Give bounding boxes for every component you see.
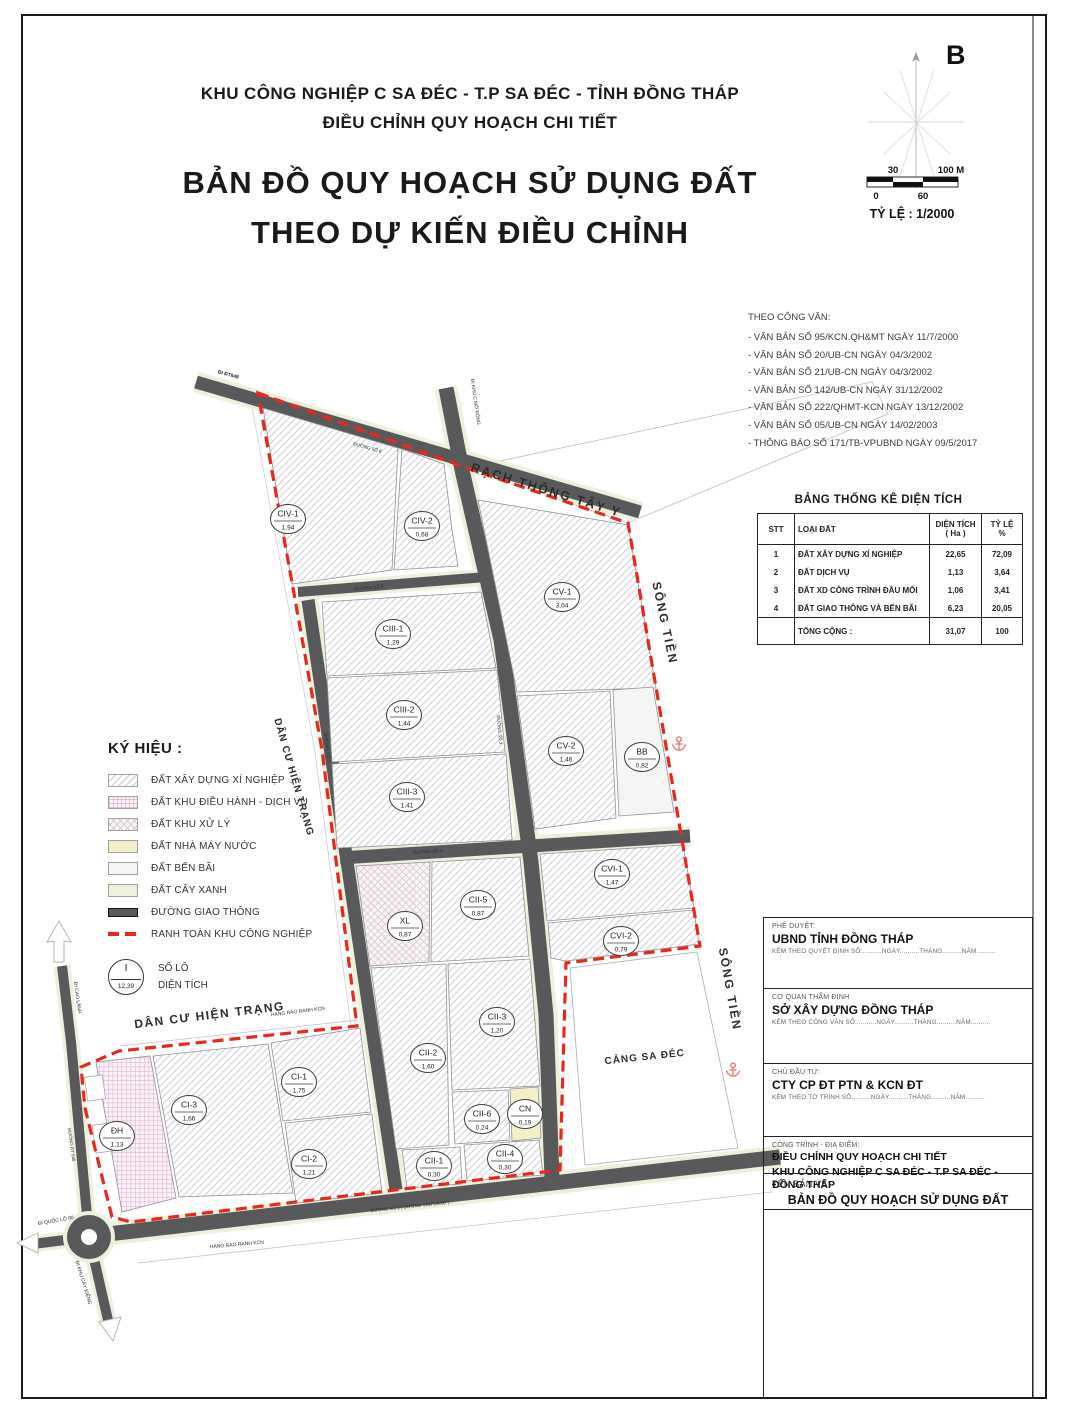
- document-item: - VĂN BẢN SỐ 142/UB-CN NGÀY 31/12/2002: [748, 382, 1033, 400]
- legend-label: RANH TOÀN KHU CÔNG NGHIỆP: [151, 929, 312, 940]
- table-cell: 1: [758, 545, 795, 564]
- svg-text:0,30: 0,30: [499, 1165, 512, 1172]
- lot-symbol-labels: SỐ LÔ DIỆN TÍCH: [158, 960, 208, 994]
- svg-text:0,82: 0,82: [636, 763, 649, 770]
- table-cell: 3,41: [982, 581, 1023, 599]
- approval-section: PHÊ DUYỆT: UBND TỈNH ĐỒNG THÁP KÈM THEO …: [764, 918, 1032, 988]
- legend-item: ĐẤT XÂY DỰNG XÍ NGHIỆP: [108, 769, 373, 791]
- svg-text:0: 0: [873, 191, 878, 202]
- table-cell: [758, 618, 795, 645]
- document-item: - THÔNG BÁO SỐ 171/TB-VPUBND NGÀY 09/5/2…: [748, 435, 1033, 453]
- table-cell: 20,05: [982, 599, 1023, 618]
- map-header: KHU CÔNG NGHIỆP C SA ĐÉC - T.P SA ĐÉC - …: [80, 84, 860, 251]
- col-dien-tich: DIỆN TÍCH ( Ha ): [930, 514, 982, 545]
- svg-text:1,47: 1,47: [606, 880, 619, 887]
- svg-text:1,44: 1,44: [398, 721, 411, 728]
- page-subtitle: THEO DỰ KIẾN ĐIỀU CHỈNH: [80, 215, 860, 251]
- svg-text:CVI-1: CVI-1: [601, 864, 623, 874]
- total-label: TỔNG CỘNG :: [795, 618, 930, 645]
- table-row: 4ĐẤT GIAO THÔNG VÀ BẾN BÃI6,2320,05: [758, 599, 1023, 618]
- svg-text:1,13: 1,13: [111, 1142, 124, 1149]
- svg-text:1,41: 1,41: [401, 803, 414, 810]
- legend-label: ĐẤT CÂY XANH: [151, 885, 227, 896]
- investor-label: CHỦ ĐẦU TƯ:: [772, 1069, 1024, 1076]
- svg-text:3,04: 3,04: [556, 603, 569, 610]
- table-row: 3ĐẤT XD CÔNG TRÌNH ĐẦU MỐI1,063,41: [758, 581, 1023, 599]
- parcel-badge-CII-2: CII-21,60: [411, 1044, 446, 1073]
- map-label: DÂN CƯ HIỆN TRẠNG: [133, 998, 285, 1031]
- empty-section: [764, 1209, 1032, 1397]
- svg-text:CII-5: CII-5: [469, 895, 488, 905]
- parcel-badge-CII-3: CII-31,20: [480, 1008, 515, 1037]
- svg-text:30: 30: [888, 165, 899, 176]
- svg-text:CIII-3: CIII-3: [397, 787, 418, 797]
- total-pct: 100: [982, 618, 1023, 645]
- map-label: HÀNG RÀO RANH KCN: [210, 1239, 265, 1251]
- scale-ratio: TỶ LỆ : 1/2000: [870, 206, 955, 221]
- svg-text:0,87: 0,87: [472, 911, 485, 918]
- svg-text:CIII-1: CIII-1: [383, 624, 404, 634]
- svg-text:CII-2: CII-2: [419, 1048, 438, 1058]
- table-cell: 3,64: [982, 563, 1023, 581]
- parcel-badge-CII-6: CII-60,24: [465, 1105, 500, 1134]
- svg-text:CII-4: CII-4: [496, 1149, 515, 1159]
- svg-text:CI-3: CI-3: [181, 1100, 197, 1110]
- drawing-sheet: CIV-11,94CIV-20,68CV-13,04CIII-11,29CIII…: [0, 0, 1066, 1415]
- table-cell: 2: [758, 563, 795, 581]
- legend-swatch-green: [108, 884, 138, 897]
- table-cell: 6,23: [930, 599, 982, 618]
- svg-text:CIV-2: CIV-2: [411, 516, 433, 526]
- svg-text:0,87: 0,87: [399, 932, 412, 939]
- svg-text:1,75: 1,75: [293, 1088, 306, 1095]
- review-authority: SỞ XÂY DỰNG ĐỒNG THÁP: [772, 1003, 1024, 1017]
- approval-note: KÈM THEO QUYẾT ĐỊNH SỐ:..........NGÀY...…: [772, 948, 1024, 955]
- legend-item: ĐẤT KHU ĐIỀU HÀNH - DỊCH VỤ: [108, 791, 373, 813]
- legend-swatch-road: [108, 908, 138, 917]
- page-title: BẢN ĐỒ QUY HOẠCH SỬ DỤNG ĐẤT: [80, 165, 860, 201]
- table-cell: ĐẤT XD CÔNG TRÌNH ĐẦU MỐI: [795, 581, 930, 599]
- legend-item: ĐẤT BẾN BÃI: [108, 857, 373, 879]
- svg-text:BB: BB: [636, 747, 648, 757]
- svg-text:1,21: 1,21: [303, 1170, 316, 1177]
- svg-text:0,79: 0,79: [615, 947, 628, 954]
- lot-symbol: I 12,39: [108, 959, 144, 995]
- document-references: THEO CÔNG VĂN: - VĂN BẢN SỐ 95/KCN.QH&MT…: [748, 312, 1033, 452]
- review-label: CƠ QUAN THẨM ĐỊNH: [772, 994, 1024, 1001]
- drawing-label: TÊN BẢN VẼ:: [772, 1179, 1024, 1189]
- svg-text:1,66: 1,66: [183, 1116, 196, 1123]
- total-row: TỔNG CỘNG : 31,07 100: [758, 618, 1023, 645]
- legend-item: RANH TOÀN KHU CÔNG NGHIỆP: [108, 923, 373, 945]
- map-label: SÔNG TIỀN: [649, 580, 681, 665]
- area-statistics: BẢNG THỐNG KÊ DIỆN TÍCH STT LOẠI ĐẤT DIỆ…: [757, 494, 1000, 645]
- legend-item: ĐƯỜNG GIAO THÔNG: [108, 901, 373, 923]
- legend-label: ĐẤT KHU XỬ LÝ: [151, 819, 230, 830]
- table-cell: 1,06: [930, 581, 982, 599]
- parcel-badge-XL: XL0,87: [388, 912, 423, 941]
- legend-swatch-grid: [108, 796, 138, 809]
- svg-text:CV-2: CV-2: [557, 741, 576, 751]
- review-note: KÈM THEO CÔNG VĂN SỐ:..........NGÀY.....…: [772, 1019, 1024, 1026]
- svg-text:CII-6: CII-6: [473, 1109, 492, 1119]
- map-label: ĐI KHU C MỞ RỘNG: [469, 378, 482, 425]
- svg-text:0,68: 0,68: [416, 532, 429, 539]
- legend-item: ĐẤT CÂY XANH: [108, 879, 373, 901]
- parcel-badge-CI-3: CI-31,66: [172, 1096, 207, 1125]
- north-label: B: [946, 40, 966, 70]
- anchor-icon: [672, 737, 686, 750]
- legend-item: ĐẤT NHÀ MÁY NƯỚC: [108, 835, 373, 857]
- parcel-badge-CV-2: CV-21,46: [549, 737, 584, 766]
- svg-text:60: 60: [918, 191, 929, 202]
- approval-authority: UBND TỈNH ĐỒNG THÁP: [772, 932, 1024, 946]
- document-list: - VĂN BẢN SỐ 95/KCN.QH&MT NGÀY 11/7/2000…: [748, 329, 1033, 452]
- svg-text:0,19: 0,19: [519, 1120, 532, 1127]
- svg-text:CVI-2: CVI-2: [610, 931, 632, 941]
- anchor-icon: [726, 1063, 740, 1076]
- legend-item: ĐẤT KHU XỬ LÝ: [108, 813, 373, 835]
- investor-name: CTY CP ĐT PTN & KCN ĐT: [772, 1078, 1024, 1092]
- svg-text:1,20: 1,20: [491, 1028, 504, 1035]
- svg-text:ĐH: ĐH: [111, 1126, 123, 1136]
- parcel-CIV-2: [394, 449, 458, 570]
- col-stt: STT: [758, 514, 795, 545]
- total-area: 31,07: [930, 618, 982, 645]
- lot-area-example: 12,39: [109, 983, 143, 990]
- legend-label: ĐẤT XÂY DỰNG XÍ NGHIỆP: [151, 775, 285, 786]
- table-title: BẢNG THỐNG KÊ DIỆN TÍCH: [757, 494, 1000, 506]
- col-ty-le: TỶ LỆ %: [982, 514, 1023, 545]
- table-cell: ĐẤT XÂY DỰNG XÍ NGHIỆP: [795, 545, 930, 564]
- project-section: CÔNG TRÌNH - ĐỊA ĐIỂM: ĐIỀU CHỈNH QUY HO…: [764, 1136, 1032, 1173]
- header-line2: ĐIỀU CHỈNH QUY HOẠCH CHI TIẾT: [80, 113, 860, 133]
- svg-text:CN: CN: [519, 1104, 531, 1114]
- legend-swatch-benbai: [108, 862, 138, 875]
- parcel-badge-BB: BB0,82: [625, 743, 660, 772]
- parcel-CI-3: [153, 1044, 293, 1197]
- svg-text:1,29: 1,29: [387, 640, 400, 647]
- svg-text:CI-2: CI-2: [301, 1154, 317, 1164]
- arrow-ql80: [17, 1233, 38, 1253]
- drawing-section: TÊN BẢN VẼ: BẢN ĐỒ QUY HOẠCH SỬ DỤNG ĐẤT: [764, 1173, 1032, 1209]
- svg-text:1,46: 1,46: [560, 757, 573, 764]
- legend-label: ĐẤT BẾN BÃI: [151, 863, 215, 874]
- parcel-badge-CII-4: CII-40,30: [488, 1145, 523, 1174]
- legend-swatch-hatch: [108, 774, 138, 787]
- parcel-badge-CV-1: CV-13,04: [545, 583, 580, 612]
- parcel-badge-CIII-3: CIII-31,41: [390, 783, 425, 812]
- svg-text:XL: XL: [400, 916, 411, 926]
- lot-number-label: SỐ LÔ: [158, 960, 208, 977]
- legend-swatch-dashed: [108, 932, 138, 936]
- col-loai-dat: LOẠI ĐẤT: [795, 514, 930, 545]
- svg-text:CI-1: CI-1: [291, 1072, 307, 1082]
- lot-number-example: I: [109, 963, 143, 974]
- svg-text:CIII-2: CIII-2: [394, 705, 415, 715]
- legend-label: ĐƯỜNG GIAO THÔNG: [151, 907, 260, 918]
- drawing-name: BẢN ĐỒ QUY HOẠCH SỬ DỤNG ĐẤT: [772, 1193, 1024, 1207]
- lot-symbol-row: I 12,39 SỐ LÔ DIỆN TÍCH: [108, 959, 373, 995]
- legend-items: ĐẤT XÂY DỰNG XÍ NGHIỆPĐẤT KHU ĐIỀU HÀNH …: [108, 769, 373, 945]
- area-table: STT LOẠI ĐẤT DIỆN TÍCH ( Ha ) TỶ LỆ % 1Đ…: [757, 513, 1023, 645]
- title-block: PHÊ DUYỆT: UBND TỈNH ĐỒNG THÁP KÈM THEO …: [763, 917, 1033, 1398]
- table-row: 1ĐẤT XÂY DỰNG XÍ NGHIỆP22,6572,09: [758, 545, 1023, 564]
- table-cell: ĐẤT GIAO THÔNG VÀ BẾN BÃI: [795, 599, 930, 618]
- document-item: - VĂN BẢN SỐ 95/KCN.QH&MT NGÀY 11/7/2000: [748, 329, 1033, 347]
- parcel-badge-CIV-2: CIV-20,68: [405, 512, 440, 541]
- project-line1: ĐIỀU CHỈNH QUY HOẠCH CHI TIẾT: [772, 1151, 1024, 1164]
- table-row: 2ĐẤT DỊCH VỤ1,133,64: [758, 563, 1023, 581]
- area-table-body: 1ĐẤT XÂY DỰNG XÍ NGHIỆP22,6572,092ĐẤT DỊ…: [758, 545, 1023, 618]
- table-cell: 4: [758, 599, 795, 618]
- svg-text:CII-1: CII-1: [425, 1156, 444, 1166]
- table-cell: ĐẤT DỊCH VỤ: [795, 563, 930, 581]
- arrow-cao-lanh: [47, 921, 71, 962]
- legend-label: ĐẤT NHÀ MÁY NƯỚC: [151, 841, 257, 852]
- table-cell: 3: [758, 581, 795, 599]
- svg-text:0,30: 0,30: [428, 1172, 441, 1179]
- svg-text:1,60: 1,60: [422, 1064, 435, 1071]
- svg-text:CV-1: CV-1: [553, 587, 572, 597]
- parcel-badge-CIII-1: CIII-11,29: [376, 620, 411, 649]
- review-section: CƠ QUAN THẨM ĐỊNH SỞ XÂY DỰNG ĐỒNG THÁP …: [764, 988, 1032, 1063]
- parcel-badge-CII-5: CII-50,87: [461, 891, 496, 920]
- table-cell: 72,09: [982, 545, 1023, 564]
- legend: KÝ HIỆU : ĐẤT XÂY DỰNG XÍ NGHIỆPĐẤT KHU …: [108, 740, 373, 995]
- map-label: SÔNG TIỀN: [716, 947, 745, 1032]
- svg-text:100 M: 100 M: [938, 165, 964, 176]
- investor-note: KÈM THEO TỜ TRÌNH SỐ..........NGÀY......…: [772, 1094, 1024, 1101]
- parcel-badge-CN: CN0,19: [508, 1100, 543, 1129]
- parcel-badge-CI-1: CI-11,75: [282, 1068, 317, 1097]
- table-cell: 22,65: [930, 545, 982, 564]
- legend-title: KÝ HIỆU :: [108, 740, 373, 757]
- svg-text:CII-3: CII-3: [488, 1012, 507, 1022]
- parcel-badge-CI-2: CI-21,21: [292, 1150, 327, 1179]
- document-heading: THEO CÔNG VĂN:: [748, 312, 1033, 323]
- legend-swatch-yellow: [108, 840, 138, 853]
- investor-section: CHỦ ĐẦU TƯ: CTY CP ĐT PTN & KCN ĐT KÈM T…: [764, 1063, 1032, 1136]
- parcel-badge-CIII-2: CIII-21,44: [387, 701, 422, 730]
- svg-text:CIV-1: CIV-1: [277, 509, 299, 519]
- legend-label: ĐẤT KHU ĐIỀU HÀNH - DỊCH VỤ: [151, 797, 308, 808]
- header-line1: KHU CÔNG NGHIỆP C SA ĐÉC - T.P SA ĐÉC - …: [80, 84, 860, 104]
- parcel-badge-ĐH: ĐH1,13: [100, 1122, 135, 1151]
- document-item: - VĂN BẢN SỐ 21/UB-CN NGÀY 04/3/2002: [748, 364, 1033, 382]
- parcel-badge-CIV-1: CIV-11,94: [271, 505, 306, 534]
- parcel-badge-CII-1: CII-10,30: [417, 1152, 452, 1181]
- table-header-row: STT LOẠI ĐẤT DIỆN TÍCH ( Ha ) TỶ LỆ %: [758, 514, 1023, 545]
- parcel-badge-CVI-1: CVI-11,47: [595, 860, 630, 889]
- legend-swatch-cross: [108, 818, 138, 831]
- approval-label: PHÊ DUYỆT:: [772, 923, 1024, 930]
- document-item: - VĂN BẢN SỐ 222/QHMT-KCN NGÀY 13/12/200…: [748, 399, 1033, 417]
- svg-text:1,94: 1,94: [282, 525, 295, 532]
- svg-text:0,24: 0,24: [476, 1125, 489, 1132]
- table-cell: 1,13: [930, 563, 982, 581]
- document-item: - VĂN BẢN SỐ 05/UB-CN NGÀY 14/02/2003: [748, 417, 1033, 435]
- project-label: CÔNG TRÌNH - ĐỊA ĐIỂM:: [772, 1142, 1024, 1149]
- parcel-badge-CVI-2: CVI-20,79: [604, 927, 639, 956]
- lot-area-label: DIỆN TÍCH: [158, 977, 208, 994]
- document-item: - VĂN BẢN SỐ 20/UB-CN NGÀY 04/3/2002: [748, 347, 1033, 365]
